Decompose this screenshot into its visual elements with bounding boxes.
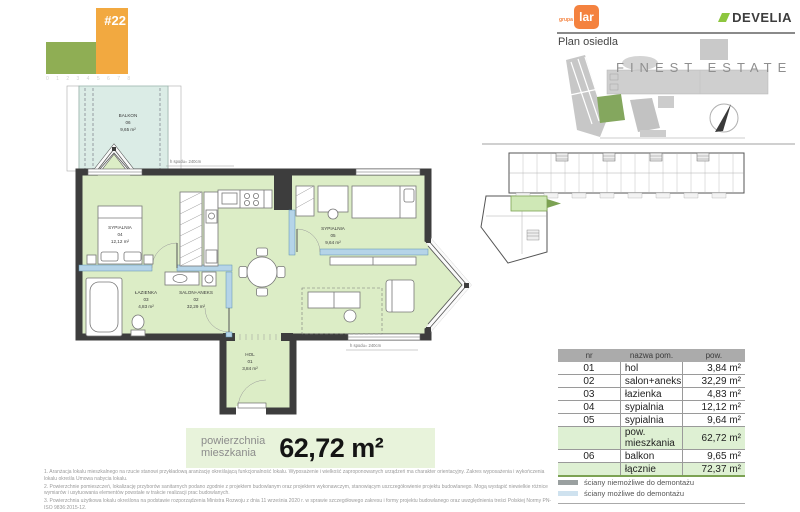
cell-nr (558, 463, 620, 477)
cell-nr (558, 427, 620, 450)
room-label: SYPIALNIA (108, 225, 133, 230)
table-row: 02 salon+aneks 32,29 m² (558, 375, 745, 388)
cell-area: 72,37 m² (683, 463, 745, 477)
cell-name: łazienka (620, 388, 682, 401)
room-label: 9,65 m² (120, 127, 136, 132)
compass-icon (710, 104, 738, 132)
hall-wardrobe (180, 192, 202, 266)
cell-area: 12,12 m² (683, 401, 745, 414)
cell-name: pow. mieszkania (620, 427, 682, 450)
legend-label: ściany niemożliwe do demontażu (584, 478, 694, 487)
develia-label: DEVELIA (732, 10, 792, 25)
table-row: 03 łazienka 4,83 m² (558, 388, 745, 401)
legend-item: ściany niemożliwe do demontażu (558, 478, 748, 487)
watermark-text: FINEST ESTATE (616, 60, 792, 75)
site-map: FINEST ESTATE (555, 36, 800, 148)
cell-area: 3,84 m² (683, 362, 745, 375)
develia-logo: DEVELIA (660, 10, 792, 25)
cell-name: sypialnia (620, 414, 682, 427)
room-label: 02 (193, 297, 199, 302)
table-row: 01 hol 3,84 m² (558, 362, 745, 375)
highlighted-unit (511, 196, 561, 211)
legend-item: ściany możliwe do demontażu (558, 489, 748, 498)
walls-legend: ściany niemożliwe do demontażu ściany mo… (558, 478, 748, 500)
room-label: 12,12 m² (111, 239, 130, 244)
room-label: HOL (245, 352, 255, 357)
apartment-floor-plan: BALKON 06 9,65 m² SYPIALNIA 04 12,12 m² … (50, 75, 480, 425)
room-label: ŁAZIENKA (135, 290, 158, 295)
cell-name: hol (620, 362, 682, 375)
cell-nr: 03 (558, 388, 620, 401)
grupa-lar-logo: lar (574, 5, 599, 29)
cell-area: 32,29 m² (683, 375, 745, 388)
room-label: SALON+ANEKS (179, 290, 213, 295)
cell-area: 9,65 m² (683, 450, 745, 463)
building-overview (478, 140, 800, 270)
room-label: 03 (143, 297, 149, 302)
legend-label: ściany możliwe do demontażu (584, 489, 684, 498)
floor-plan-sheet: #22 0 1 2 3 4 5 6 7 8 grupa lar DEVELIA … (0, 0, 800, 512)
lar-label: lar (579, 10, 594, 24)
unit-number: #22 (94, 13, 126, 28)
site-map-shapes (566, 39, 768, 138)
cell-name: łącznie (620, 463, 682, 477)
room-label: 04 (117, 232, 123, 237)
room-label: 01 (247, 359, 253, 364)
cell-nr: 02 (558, 375, 620, 388)
table-row: 06 balkon 9,65 m² (558, 450, 745, 463)
room-label: 32,29 m² (187, 304, 206, 309)
cell-area: 9,64 m² (683, 414, 745, 427)
area-badge-value: 62,72 m² (279, 433, 383, 464)
room-label: 05 (330, 233, 336, 238)
demountable-wall-swatch (558, 491, 578, 496)
room-label: BALKON (119, 113, 138, 118)
room-label: 06 (125, 120, 131, 125)
cell-name: balkon (620, 450, 682, 463)
footnotes: 1. Aranżacja lokalu mieszkalnego na rzuc… (44, 469, 552, 512)
cell-name: sypialnia (620, 401, 682, 414)
room-label: 9,64 m² (325, 240, 341, 245)
highlighted-building (597, 94, 625, 123)
annotation-text: h spodu= 240cm (170, 159, 202, 164)
annotation-text: h spodu= 240cm (350, 343, 382, 348)
header-divider (557, 32, 795, 34)
table-header-row: nr nazwa pom. pow. (558, 349, 745, 362)
area-badge-label: powierzchnia mieszkania (201, 436, 265, 460)
col-header-area: pow. (683, 349, 745, 362)
footnote: 2. Powierzchnie pomieszczeń, lokalizację… (44, 484, 552, 498)
room-label: 4,83 m² (138, 304, 154, 309)
table-row-subtotal: pow. mieszkania 62,72 m² (558, 427, 745, 450)
grupa-lar-logo-grupa: grupa (559, 17, 573, 23)
cell-nr: 05 (558, 414, 620, 427)
total-area-badge: powierzchnia mieszkania 62,72 m² (186, 428, 435, 468)
footnote: 3. Powierzchnia użytkowa lokalu określon… (44, 498, 552, 512)
cell-nr: 06 (558, 450, 620, 463)
footnote: 1. Aranżacja lokalu mieszkalnego na rzuc… (44, 469, 552, 483)
legend-divider (558, 503, 745, 504)
cell-name: salon+aneks (620, 375, 682, 388)
cell-area: 62,72 m² (683, 427, 745, 450)
area-badge-label-line2: mieszkania (201, 448, 265, 460)
table-row: 05 sypialnia 9,64 m² (558, 414, 745, 427)
col-header-nr: nr (558, 349, 620, 362)
unit-arrow-icon (547, 199, 561, 208)
table-row: 04 sypialnia 12,12 m² (558, 401, 745, 414)
room-area-table: nr nazwa pom. pow. 01 hol 3,84 m² 02 sal… (558, 349, 745, 477)
table-row-total: łącznie 72,37 m² (558, 463, 745, 477)
cell-area: 4,83 m² (683, 388, 745, 401)
cell-nr: 04 (558, 401, 620, 414)
cell-nr: 01 (558, 362, 620, 375)
room-label: 3,84 m² (242, 366, 258, 371)
room-label: SYPIALNIA (321, 226, 346, 231)
fixed-wall-swatch (558, 480, 578, 485)
col-header-name: nazwa pom. (620, 349, 682, 362)
develia-logo-icon (718, 13, 730, 22)
